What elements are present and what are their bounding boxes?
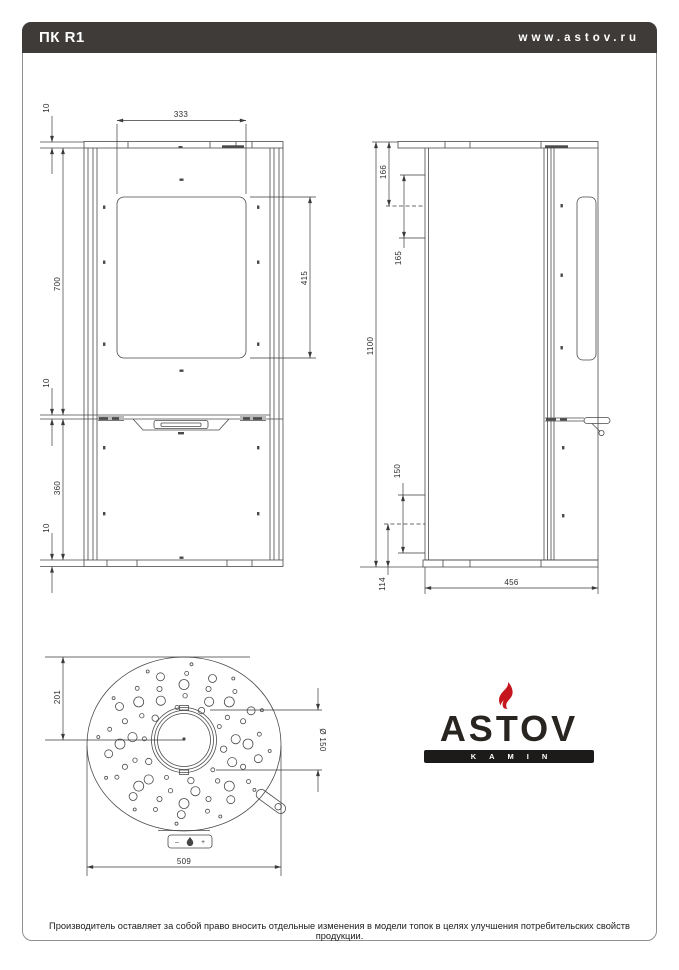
- air-plus-label: +: [201, 839, 205, 846]
- dim-side-b2: 114: [378, 577, 387, 591]
- disclaimer-text: Производитель оставляет за собой право в…: [45, 921, 634, 941]
- vent-holes: [97, 663, 271, 825]
- dim-top-width: 509: [177, 857, 191, 866]
- side-view: 1100 166 165 150 114 456: [360, 142, 610, 595]
- flue-collar-front: [222, 145, 244, 148]
- dim-front-plate: 10: [42, 103, 51, 113]
- dim-top-flue: Ø 150: [318, 728, 327, 752]
- fastener-marks-front: [103, 146, 259, 559]
- dim-side-depth: 456: [504, 578, 518, 587]
- flue-collar-side: [545, 145, 568, 148]
- handle-top: [254, 787, 287, 815]
- air-control: – +: [168, 835, 212, 848]
- dim-side-total: 1100: [366, 337, 375, 356]
- technical-drawing: 333 10 700 415 10 360 10: [0, 0, 679, 970]
- air-minus-label: –: [175, 839, 179, 846]
- title-bar: ПК R1 www.astov.ru: [22, 22, 657, 53]
- brand-sub: KAMIN: [458, 752, 561, 761]
- side-glass: [577, 197, 596, 360]
- website-label: www.astov.ru: [519, 32, 641, 44]
- dim-front-base: 10: [42, 523, 51, 533]
- door-handle-side: [545, 418, 610, 436]
- top-view: – + 201 Ø 150 509: [45, 657, 327, 876]
- fastener-marks-side: [561, 204, 565, 517]
- door-glass-front: [117, 197, 246, 358]
- front-view: 333 10 700 415 10 360 10: [40, 103, 316, 593]
- brand-name: ASTOV: [424, 711, 594, 747]
- body-outline-top: [87, 657, 281, 831]
- dim-side-t1: 166: [379, 165, 388, 179]
- dim-side-t2: 165: [394, 251, 403, 265]
- flame-icon: [187, 837, 193, 846]
- dim-side-b1: 150: [393, 464, 402, 478]
- brand-logo: ASTOV KAMIN: [424, 682, 594, 763]
- dim-front-glass-height: 415: [300, 271, 309, 285]
- model-label: ПК R1: [39, 29, 85, 46]
- door-handle-front: [98, 417, 266, 434]
- dim-front-pedestal: 360: [53, 481, 62, 495]
- dim-top-back: 201: [53, 690, 62, 704]
- dim-front-mid: 10: [42, 378, 51, 388]
- brand-sub-bar: KAMIN: [424, 750, 594, 763]
- dim-front-upper: 700: [53, 277, 62, 291]
- dim-front-glass-width: 333: [174, 110, 188, 119]
